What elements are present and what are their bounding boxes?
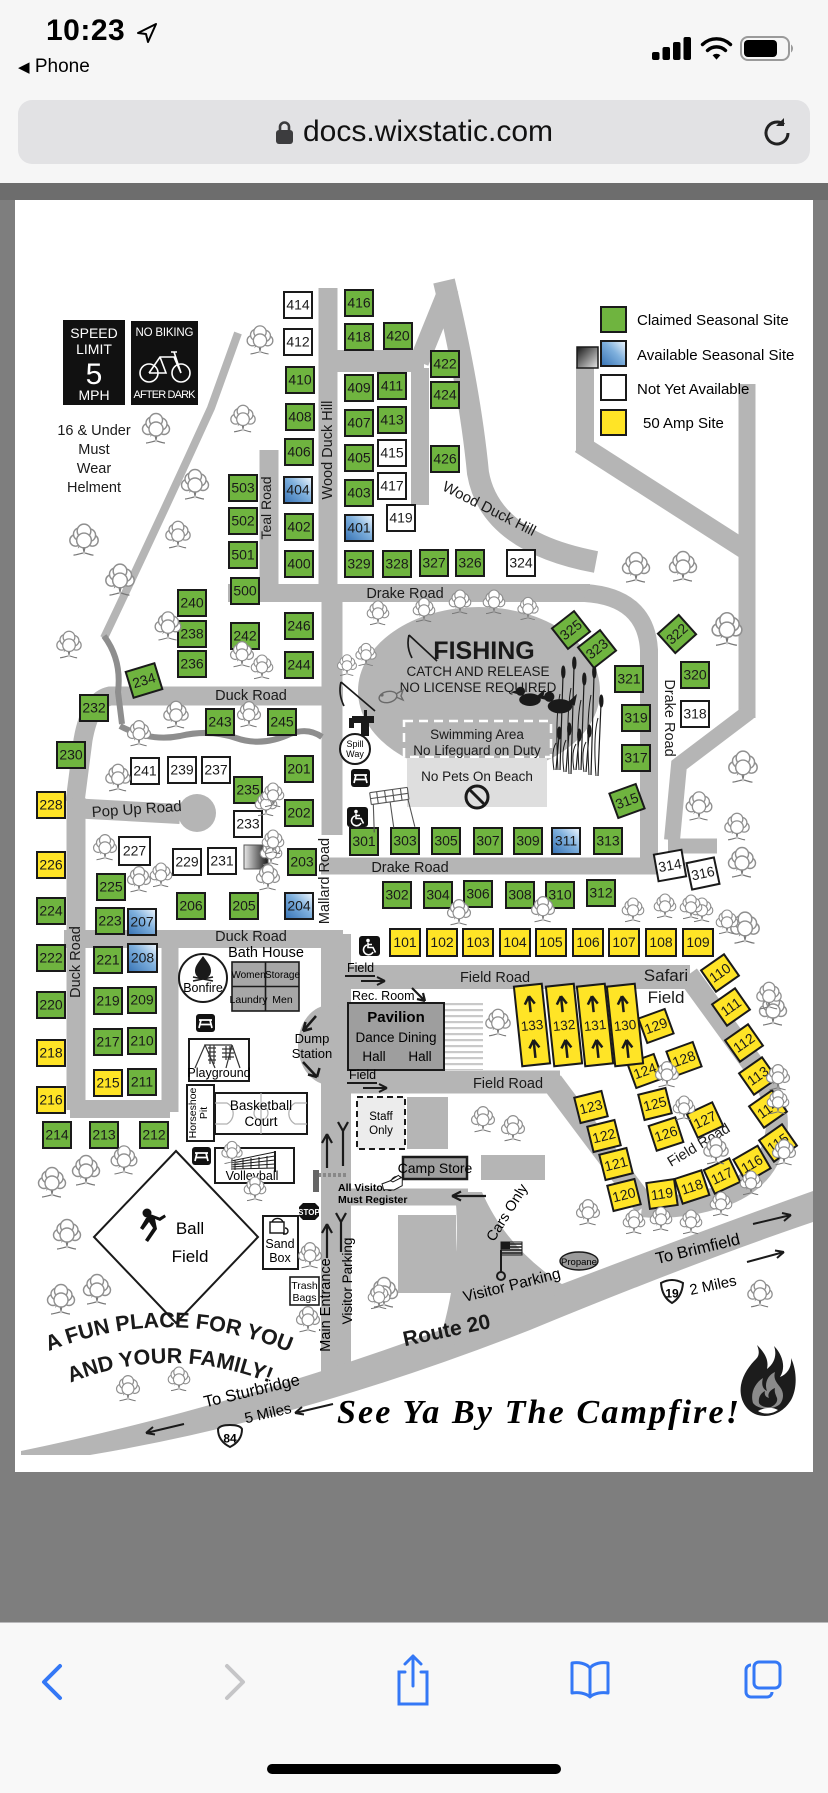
svg-text:Spill: Spill <box>346 739 363 749</box>
svg-text:Swimming Area: Swimming Area <box>430 727 524 742</box>
svg-text:414: 414 <box>286 297 310 313</box>
svg-text:416: 416 <box>347 295 371 311</box>
svg-text:317: 317 <box>624 750 648 766</box>
svg-text:SPEED: SPEED <box>70 325 117 341</box>
svg-text:Must Register: Must Register <box>338 1194 407 1206</box>
svg-text:409: 409 <box>347 380 371 396</box>
svg-text:503: 503 <box>231 480 255 496</box>
svg-text:217: 217 <box>96 1034 120 1050</box>
svg-text:107: 107 <box>612 934 636 950</box>
svg-text:231: 231 <box>210 853 234 869</box>
svg-text:209: 209 <box>130 992 154 1008</box>
svg-text:Teal Road: Teal Road <box>258 476 274 539</box>
svg-text:426: 426 <box>433 451 457 467</box>
svg-text:241: 241 <box>133 763 157 779</box>
svg-text:Claimed Seasonal Site: Claimed Seasonal Site <box>637 312 789 329</box>
svg-text:236: 236 <box>180 656 204 672</box>
svg-text:230: 230 <box>59 747 83 763</box>
svg-text:411: 411 <box>381 378 404 394</box>
svg-text:413: 413 <box>380 412 404 428</box>
svg-text:Visitor Parking: Visitor Parking <box>340 1238 355 1325</box>
svg-text:Available Seasonal Site: Available Seasonal Site <box>637 347 794 364</box>
svg-text:401: 401 <box>347 520 371 536</box>
svg-text:227: 227 <box>123 843 147 859</box>
svg-text:320: 320 <box>683 667 707 683</box>
svg-text:403: 403 <box>347 485 371 501</box>
svg-text:235: 235 <box>236 782 260 798</box>
svg-text:Duck Road: Duck Road <box>68 926 84 998</box>
svg-text:245: 245 <box>270 714 294 730</box>
svg-text:16 & Under: 16 & Under <box>57 423 131 439</box>
svg-text:329: 329 <box>347 556 371 572</box>
svg-text:233: 233 <box>236 816 260 832</box>
svg-text:213: 213 <box>92 1127 116 1143</box>
svg-text:326: 326 <box>458 555 482 571</box>
svg-text:500: 500 <box>233 583 257 599</box>
svg-text:415: 415 <box>380 445 404 461</box>
svg-text:237: 237 <box>204 762 228 778</box>
svg-text:328: 328 <box>385 556 409 572</box>
svg-text:406: 406 <box>287 444 311 460</box>
svg-text:Playground: Playground <box>187 1066 250 1080</box>
svg-text:420: 420 <box>386 328 410 344</box>
svg-text:Box: Box <box>269 1251 291 1265</box>
svg-text:404: 404 <box>286 482 310 498</box>
svg-text:240: 240 <box>180 595 204 611</box>
svg-text:Bath House: Bath House <box>228 945 304 961</box>
svg-text:402: 402 <box>287 519 311 535</box>
svg-text:131: 131 <box>583 1017 607 1034</box>
svg-text:Ball: Ball <box>176 1219 204 1238</box>
svg-text:303: 303 <box>393 833 417 849</box>
svg-text:304: 304 <box>426 887 450 903</box>
svg-text:Dump: Dump <box>295 1031 330 1046</box>
svg-text:Drake Road: Drake Road <box>371 860 448 876</box>
svg-text:214: 214 <box>45 1127 69 1143</box>
svg-text:220: 220 <box>39 997 63 1013</box>
svg-text:Station: Station <box>292 1046 332 1061</box>
svg-text:Pavilion: Pavilion <box>367 1009 425 1026</box>
svg-text:Hall: Hall <box>408 1049 431 1064</box>
svg-text:226: 226 <box>39 857 63 873</box>
svg-text:311: 311 <box>555 833 578 849</box>
svg-text:Field: Field <box>347 961 374 975</box>
svg-text:228: 228 <box>39 797 63 813</box>
svg-text:132: 132 <box>552 1017 576 1034</box>
svg-text:Rec. Room: Rec. Room <box>352 989 415 1003</box>
svg-text:313: 313 <box>596 833 620 849</box>
svg-text:Field Road: Field Road <box>460 970 530 986</box>
svg-text:243: 243 <box>208 714 232 730</box>
svg-text:Field: Field <box>349 1068 376 1082</box>
svg-text:Field Road: Field Road <box>473 1076 543 1092</box>
svg-text:418: 418 <box>347 329 371 345</box>
svg-text:LIMIT: LIMIT <box>76 341 112 357</box>
svg-text:221: 221 <box>96 952 120 968</box>
svg-text:Drake Road: Drake Road <box>661 679 677 756</box>
svg-text:408: 408 <box>288 409 312 425</box>
svg-text:AFTER DARK: AFTER DARK <box>134 389 197 401</box>
svg-text:STOP: STOP <box>298 1208 320 1217</box>
svg-text:309: 309 <box>516 833 540 849</box>
svg-text:Drake Road: Drake Road <box>366 586 443 602</box>
svg-text:208: 208 <box>131 950 155 966</box>
svg-text:133: 133 <box>520 1017 544 1034</box>
svg-text:Sand: Sand <box>265 1237 294 1251</box>
svg-text:104: 104 <box>503 934 527 950</box>
svg-text:108: 108 <box>649 934 673 950</box>
svg-text:Hall: Hall <box>362 1049 385 1064</box>
svg-text:Laundry: Laundry <box>230 994 269 1006</box>
svg-text:305: 305 <box>434 833 458 849</box>
svg-text:Mallard Road: Mallard Road <box>317 838 333 924</box>
svg-text:103: 103 <box>466 934 490 950</box>
svg-text:Bonfire: Bonfire <box>183 981 223 995</box>
svg-text:318: 318 <box>683 706 707 722</box>
svg-text:229: 229 <box>175 854 199 870</box>
svg-text:Safari: Safari <box>644 966 688 985</box>
svg-text:422: 422 <box>433 356 457 372</box>
svg-text:Propane: Propane <box>561 1257 597 1268</box>
svg-text:502: 502 <box>231 513 255 529</box>
svg-text:219: 219 <box>96 993 120 1009</box>
svg-text:Main Entrance: Main Entrance <box>318 1258 334 1352</box>
svg-text:206: 206 <box>179 898 203 914</box>
svg-text:NO LICENSE REQUIRED: NO LICENSE REQUIRED <box>400 680 557 695</box>
svg-text:215: 215 <box>96 1075 120 1091</box>
svg-text:222: 222 <box>39 950 63 966</box>
svg-text:106: 106 <box>576 934 600 950</box>
svg-text:109: 109 <box>686 934 710 950</box>
svg-text:Storage: Storage <box>265 970 300 981</box>
svg-text:Field: Field <box>172 1247 209 1266</box>
svg-text:FISHING: FISHING <box>433 637 534 665</box>
svg-text:246: 246 <box>287 618 311 634</box>
svg-text:417: 417 <box>380 478 404 494</box>
svg-text:218: 218 <box>39 1045 63 1061</box>
svg-text:50 Amp Site: 50 Amp Site <box>643 415 724 432</box>
svg-text:Camp Store: Camp Store <box>398 1160 473 1176</box>
svg-text:130: 130 <box>613 1017 637 1034</box>
svg-text:307: 307 <box>476 833 500 849</box>
svg-text:216: 216 <box>39 1092 63 1108</box>
svg-text:Wood Duck Hill: Wood Duck Hill <box>320 401 336 500</box>
svg-text:MPH: MPH <box>78 387 109 403</box>
svg-text:Must: Must <box>78 442 109 458</box>
svg-text:407: 407 <box>347 415 371 431</box>
svg-text:Not Yet Available: Not Yet Available <box>637 381 749 398</box>
svg-text:302: 302 <box>385 887 409 903</box>
svg-text:301: 301 <box>352 833 376 849</box>
svg-text:105: 105 <box>539 934 563 950</box>
svg-text:211: 211 <box>131 1074 154 1090</box>
svg-text:210: 210 <box>130 1033 154 1049</box>
svg-text:Trash: Trash <box>291 1280 318 1292</box>
svg-text:Court: Court <box>244 1114 277 1129</box>
svg-text:501: 501 <box>231 547 255 563</box>
svg-text:Dance Dining: Dance Dining <box>355 1030 436 1045</box>
svg-text:419: 419 <box>389 510 413 526</box>
svg-text:Duck Road: Duck Road <box>215 929 287 945</box>
svg-text:101: 101 <box>393 934 417 950</box>
svg-text:Way: Way <box>346 749 364 759</box>
svg-text:238: 238 <box>180 626 204 642</box>
svg-text:See Ya By The Campfire!: See Ya By The Campfire! <box>337 1394 739 1431</box>
svg-text:Pit: Pit <box>198 1107 210 1119</box>
svg-text:225: 225 <box>99 879 123 895</box>
svg-text:244: 244 <box>287 657 311 673</box>
svg-text:224: 224 <box>39 903 63 919</box>
svg-text:No Pets On Beach: No Pets On Beach <box>421 769 533 784</box>
svg-text:Men: Men <box>272 994 293 1006</box>
svg-text:310: 310 <box>548 887 572 903</box>
svg-text:CATCH AND RELEASE: CATCH AND RELEASE <box>406 664 549 679</box>
svg-text:Helment: Helment <box>67 480 121 496</box>
svg-text:410: 410 <box>288 372 312 388</box>
svg-text:Wear: Wear <box>77 461 112 477</box>
svg-text:19: 19 <box>665 1287 679 1301</box>
svg-text:223: 223 <box>98 913 122 929</box>
svg-text:400: 400 <box>287 556 311 572</box>
svg-text:84: 84 <box>223 1432 237 1446</box>
svg-text:324: 324 <box>509 555 533 571</box>
svg-text:242: 242 <box>233 628 257 644</box>
svg-text:327: 327 <box>422 555 446 571</box>
svg-text:119: 119 <box>650 1184 675 1203</box>
svg-text:202: 202 <box>287 805 311 821</box>
svg-text:Women: Women <box>231 970 265 981</box>
svg-text:308: 308 <box>508 887 532 903</box>
svg-text:No Lifeguard on Duty: No Lifeguard on Duty <box>413 743 541 758</box>
svg-text:321: 321 <box>617 671 641 687</box>
svg-text:201: 201 <box>287 761 311 777</box>
svg-text:Only: Only <box>369 1125 393 1137</box>
svg-text:203: 203 <box>290 854 314 870</box>
svg-text:232: 232 <box>82 700 106 716</box>
svg-text:405: 405 <box>347 450 371 466</box>
svg-text:319: 319 <box>624 710 648 726</box>
svg-text:NO BIKING: NO BIKING <box>136 327 194 339</box>
svg-text:207: 207 <box>130 914 154 930</box>
svg-text:205: 205 <box>232 898 256 914</box>
svg-text:102: 102 <box>430 934 454 950</box>
svg-text:212: 212 <box>142 1127 166 1143</box>
svg-text:424: 424 <box>433 387 457 403</box>
svg-text:Staff: Staff <box>369 1111 393 1123</box>
svg-text:412: 412 <box>286 334 310 350</box>
svg-text:204: 204 <box>287 898 311 914</box>
svg-text:312: 312 <box>589 885 613 901</box>
svg-text:306: 306 <box>466 886 490 902</box>
svg-text:Bags: Bags <box>293 1292 317 1304</box>
svg-text:Field: Field <box>648 988 685 1007</box>
svg-text:239: 239 <box>170 762 194 778</box>
svg-text:Basketball: Basketball <box>230 1098 292 1113</box>
